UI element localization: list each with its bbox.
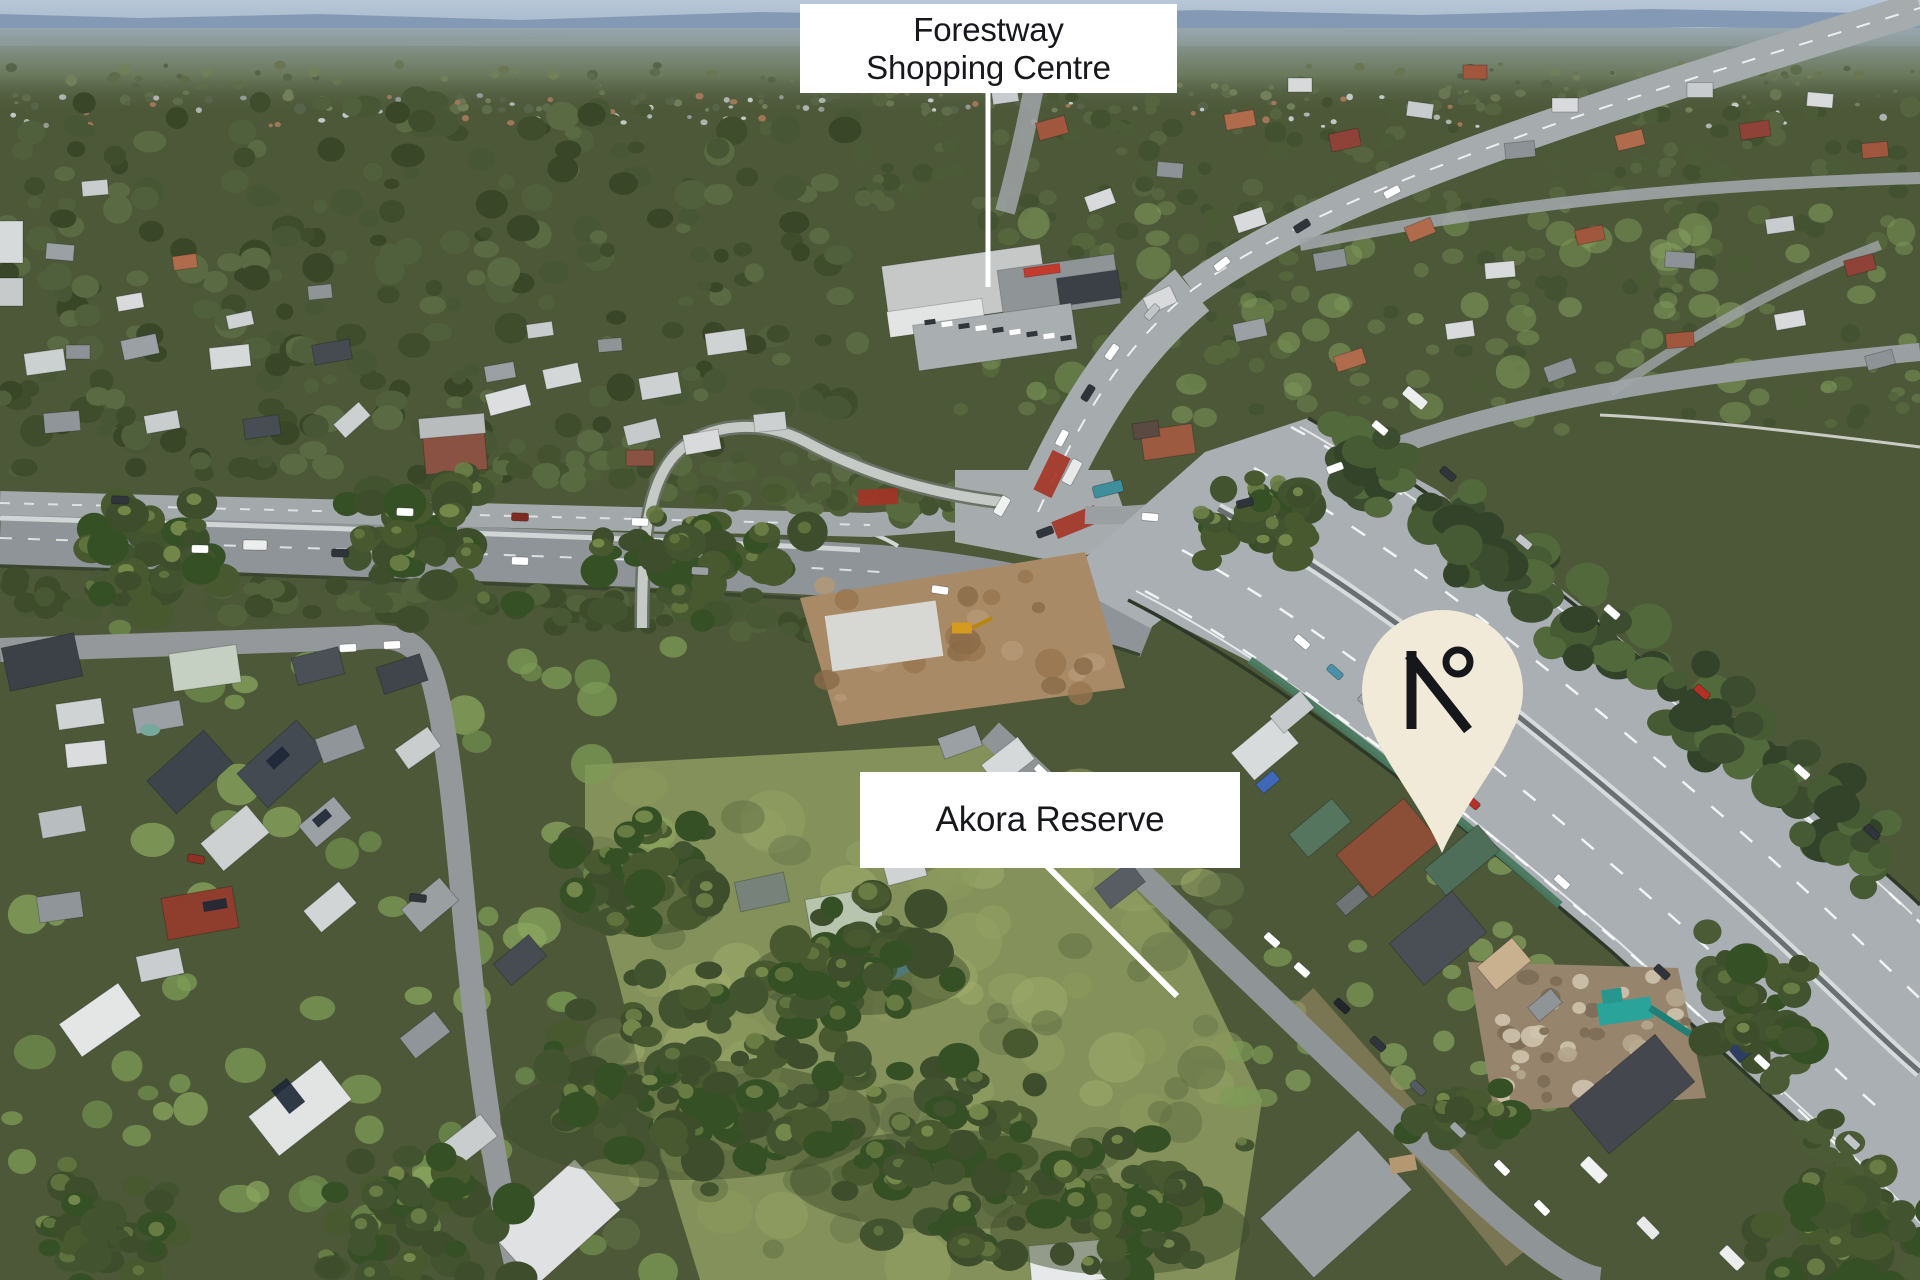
akora-leader-line [1045,864,1177,996]
akora-label-text: Akora Reserve [936,800,1165,840]
akora-reserve-label: Akora Reserve [860,772,1240,868]
annotation-overlay [0,0,1920,1280]
forestway-label-line2: Shopping Centre [866,49,1111,87]
forestway-shopping-centre-label: Forestway Shopping Centre [800,4,1177,93]
aerial-map-image: Forestway Shopping Centre Akora Reserve [0,0,1920,1280]
forestway-label-line1: Forestway [913,11,1063,49]
map-pin-icon [1362,610,1523,853]
